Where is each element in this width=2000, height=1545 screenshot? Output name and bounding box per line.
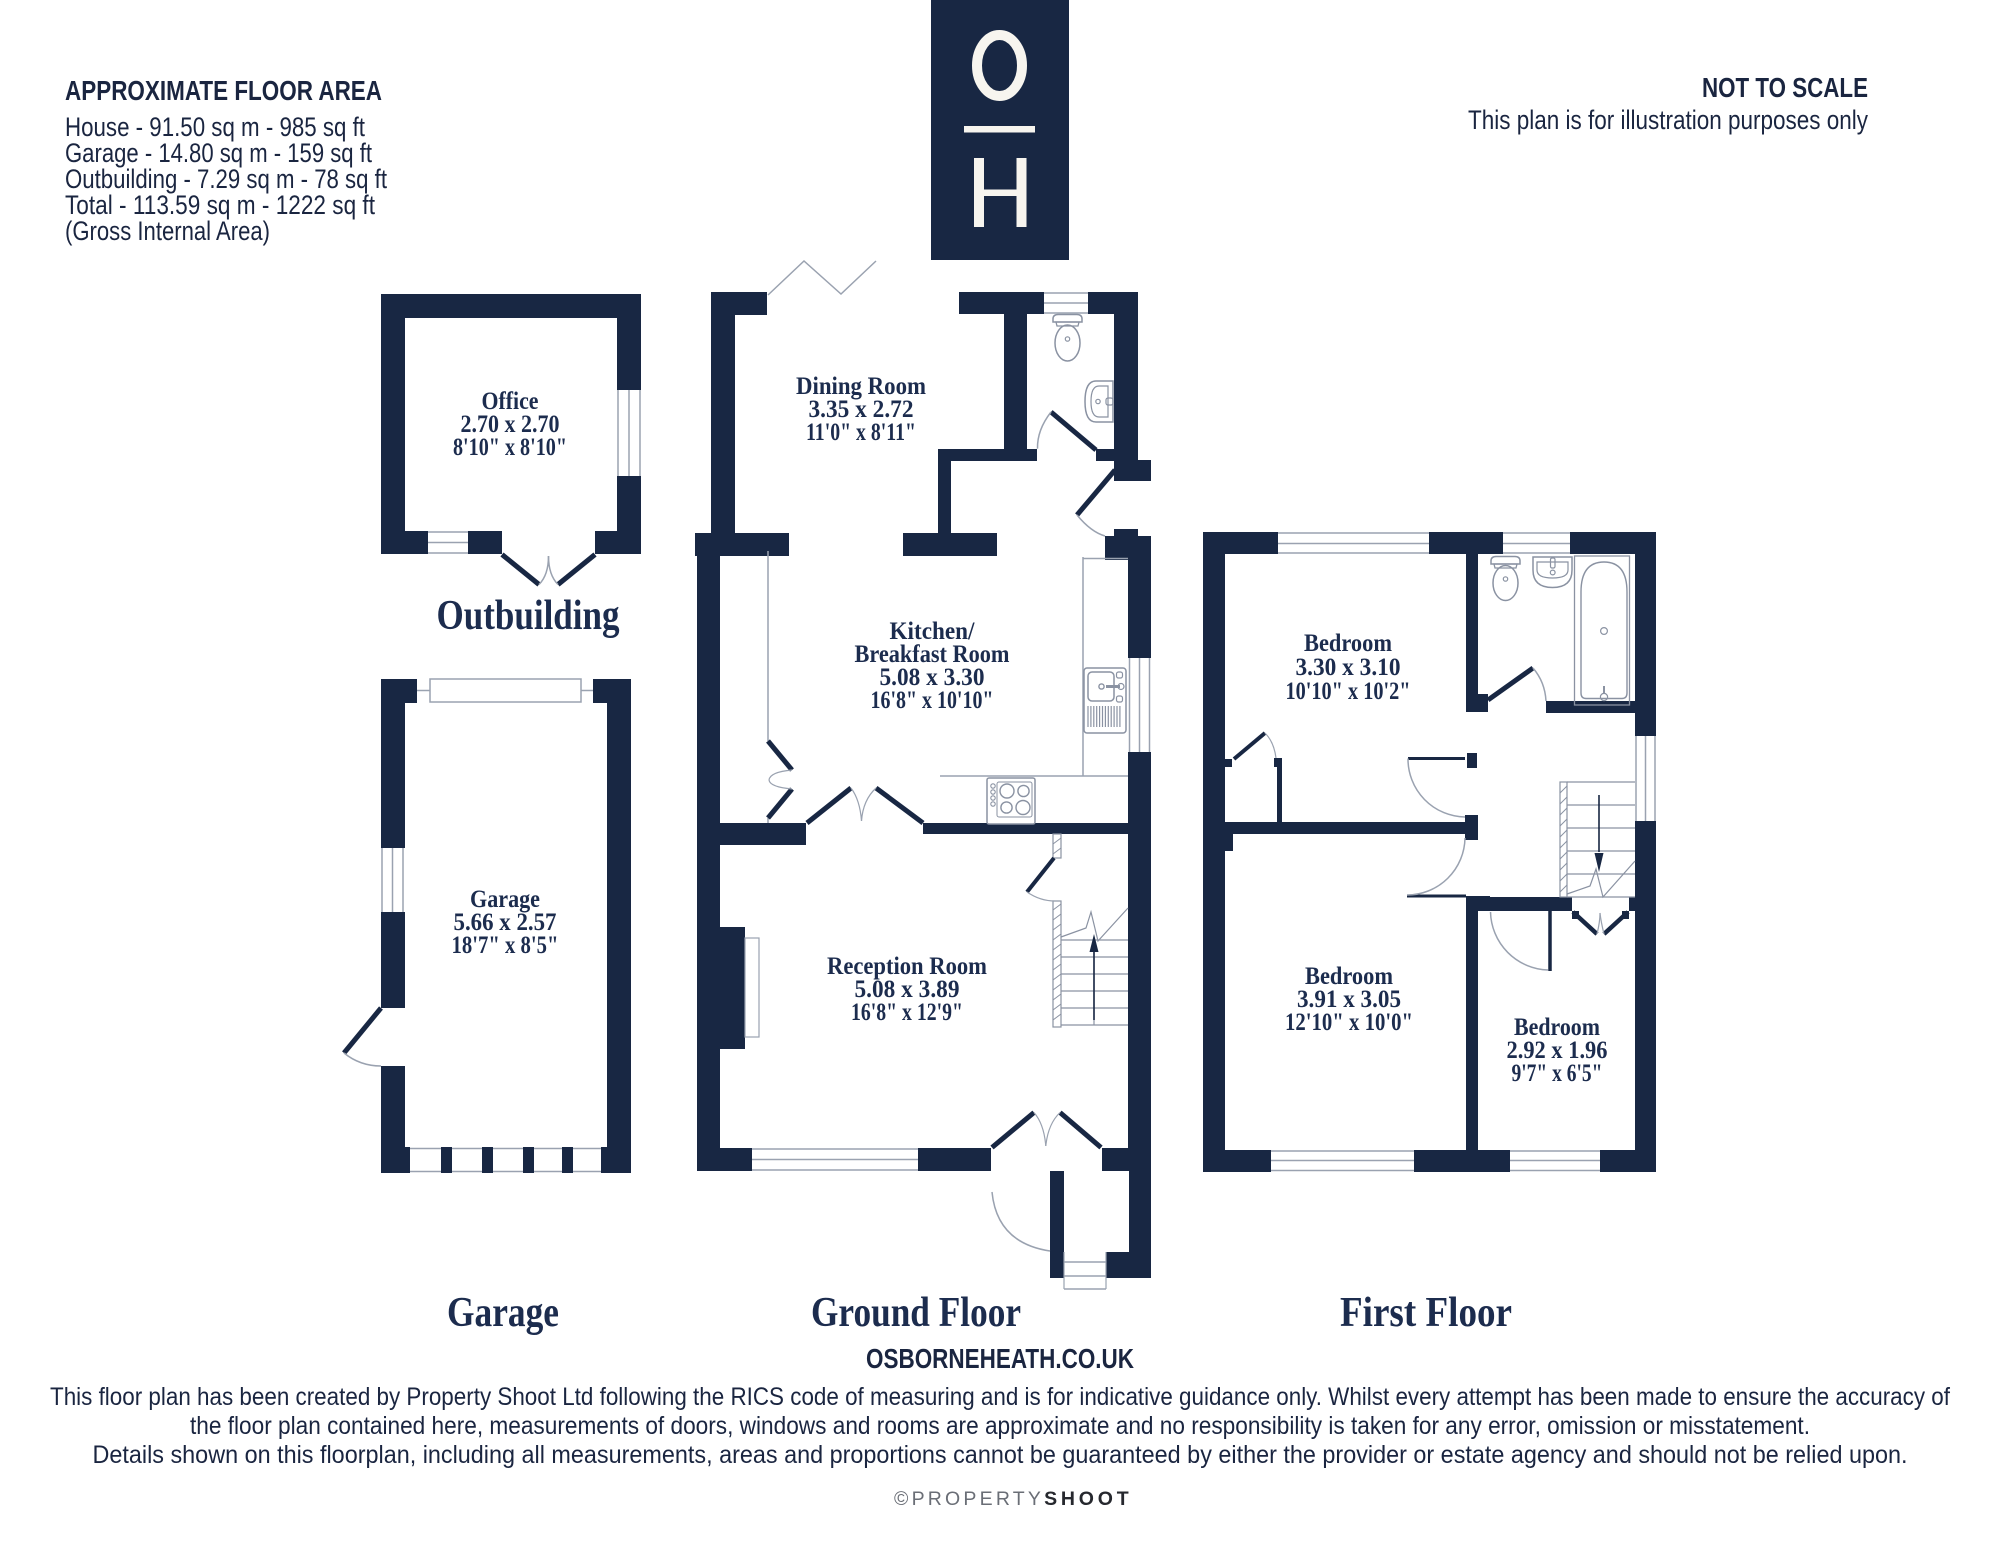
svg-text:3.30 x 3.10: 3.30 x 3.10 (1296, 654, 1401, 681)
svg-text:First Floor: First Floor (1340, 1289, 1512, 1336)
svg-text:This plan is for illustration: This plan is for illustration purposes o… (1468, 105, 1868, 135)
svg-text:9'7" x 6'5": 9'7" x 6'5" (1512, 1060, 1603, 1087)
svg-text:OSBORNEHEATH.CO.UK: OSBORNEHEATH.CO.UK (866, 1343, 1134, 1374)
svg-text:Garage: Garage (447, 1289, 559, 1336)
svg-text:11'0" x 8'11": 11'0" x 8'11" (806, 419, 916, 446)
svg-text:16'8" x 10'10": 16'8" x 10'10" (871, 687, 994, 714)
svg-text:Outbuilding: Outbuilding (437, 592, 620, 639)
svg-text:(Gross Internal Area): (Gross Internal Area) (65, 216, 270, 246)
svg-text:10'10" x 10'2": 10'10" x 10'2" (1286, 678, 1411, 705)
svg-text:Details shown on this floorpla: Details shown on this floorplan, includi… (93, 1441, 1908, 1469)
svg-text:NOT TO SCALE: NOT TO SCALE (1702, 72, 1868, 103)
svg-text:12'10" x 10'0": 12'10" x 10'0" (1285, 1009, 1413, 1036)
svg-text:Ground Floor: Ground Floor (811, 1289, 1021, 1336)
svg-text:18'7" x 8'5": 18'7" x 8'5" (452, 932, 559, 959)
svg-text:This floor plan has been creat: This floor plan has been created by Prop… (50, 1383, 1950, 1411)
svg-text:16'8" x 12'9": 16'8" x 12'9" (851, 999, 963, 1026)
svg-text:8'10" x 8'10": 8'10" x 8'10" (453, 434, 567, 461)
svg-text:Bedroom: Bedroom (1304, 630, 1392, 657)
svg-text:©PROPERTYSHOOT: ©PROPERTYSHOOT (894, 1488, 1132, 1510)
svg-text:APPROXIMATE FLOOR AREA: APPROXIMATE FLOOR AREA (65, 75, 382, 106)
svg-text:the floor plan contained here,: the floor plan contained here, measureme… (190, 1412, 1810, 1440)
